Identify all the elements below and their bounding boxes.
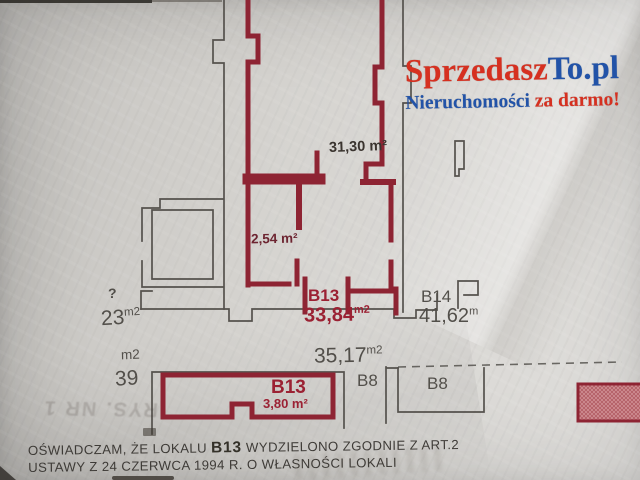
mid-area-value: 35,17 <box>314 344 367 368</box>
red-hatched-block <box>578 384 640 421</box>
left-area-unit: m2 <box>124 306 141 319</box>
logo-title-red: Sprzedasz <box>404 51 548 89</box>
label-b8-right: B8 <box>427 375 448 392</box>
photo-bottom-mark <box>112 476 174 480</box>
declaration-line1-unit: B13 <box>211 439 242 456</box>
bleedthrough-mirrored-text: RYS. NR 1 <box>17 395 159 420</box>
label-bottom-b13-id: B13 <box>271 378 306 397</box>
label-mid-unit: m2 <box>121 348 140 362</box>
mid-area-unit: m2 <box>366 344 382 356</box>
sprzedaszto-watermark: SprzedaszTo.pl Nieruchomości za darmo! <box>404 50 620 115</box>
label-left-area: 23m2 <box>100 306 141 329</box>
label-mid-area: 35,17m2 <box>314 344 383 366</box>
photo-edge-dark-strip-2 <box>152 0 222 2</box>
logo-tagline-red: za darmo! <box>530 89 620 112</box>
b14-area-unit: m <box>469 305 478 317</box>
label-bottom-b13-area: 3,80 m² <box>263 397 308 410</box>
left-area-value: 23 <box>100 306 125 330</box>
label-b8-left: B8 <box>357 372 378 389</box>
logo-tagline-blue: Nieruchomości <box>405 91 530 114</box>
label-b13-id: B13 <box>308 287 339 304</box>
b14-area-value: 41,62 <box>419 305 469 327</box>
label-small-room-area: 2,54 m² <box>251 232 298 246</box>
label-b14-id: B14 <box>421 288 451 305</box>
logo-title-blue: To.pl <box>547 50 619 87</box>
declaration-line1-prefix: OŚWIADCZAM, ŻE LOKALU <box>28 440 211 458</box>
logo-title: SprzedaszTo.pl <box>404 50 619 91</box>
label-b13-area: 33,84m2 <box>304 304 370 325</box>
photo-bottom-mark-2 <box>143 428 156 436</box>
b13-area-unit: m2 <box>354 304 370 316</box>
logo-tagline: Nieruchomości za darmo! <box>405 89 620 115</box>
floorplan-document-photo: 31,30 m² 2,54 m² B13 33,84m2 B14 41,62m … <box>0 0 640 480</box>
photo-edge-dark-strip <box>0 0 152 3</box>
label-question-mark: ? <box>108 286 117 300</box>
declaration-line1-suffix: WYDZIELONO ZGODNIE Z ART.2 <box>242 437 459 455</box>
declaration-text: OŚWIADCZAM, ŻE LOKALU B13 WYDZIELONO ZGO… <box>28 436 460 476</box>
label-left-number: 39 <box>114 367 139 389</box>
label-top-room-area: 31,30 m² <box>329 139 388 156</box>
b13-area-value: 33,84 <box>304 304 354 327</box>
label-b14-area: 41,62m <box>419 306 478 326</box>
